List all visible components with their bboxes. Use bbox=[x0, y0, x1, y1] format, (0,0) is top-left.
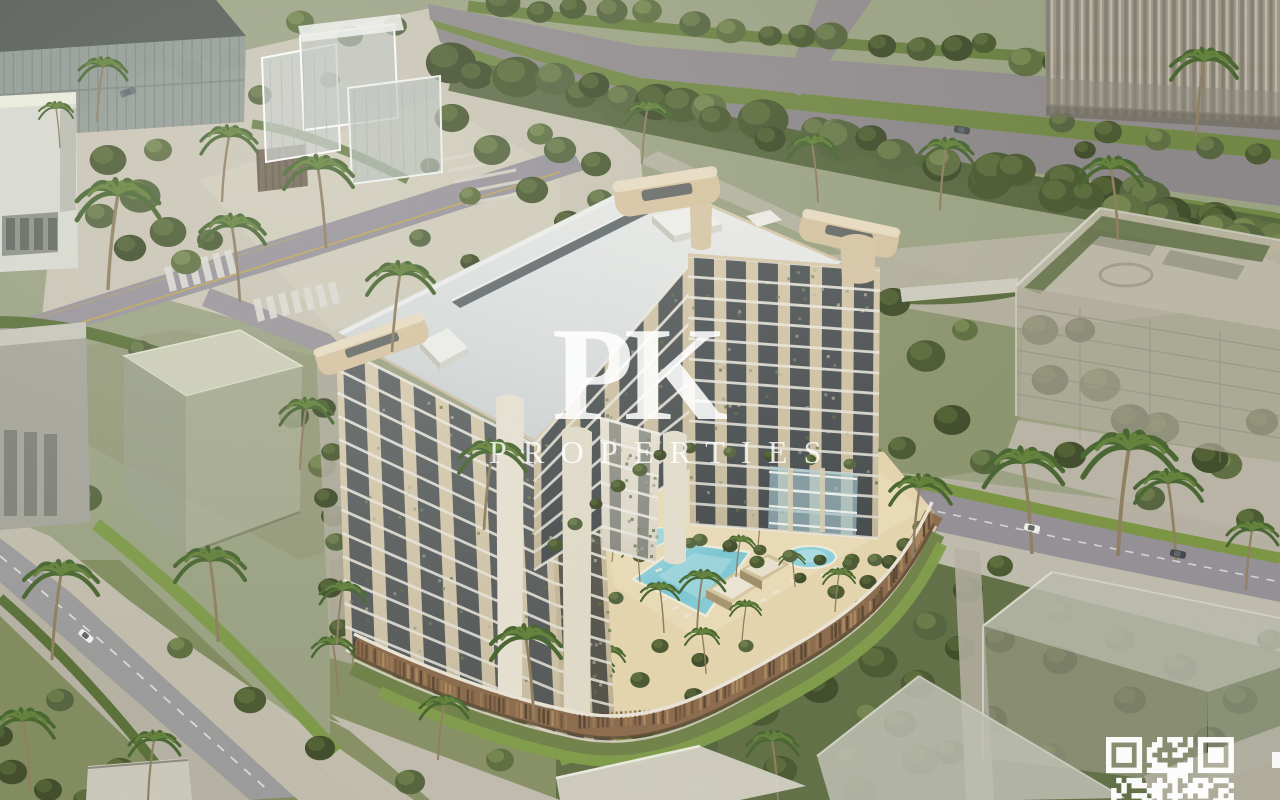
svg-text:PK: PK bbox=[552, 300, 728, 448]
svg-text:PROPERTIES: PROPERTIES bbox=[489, 434, 838, 470]
